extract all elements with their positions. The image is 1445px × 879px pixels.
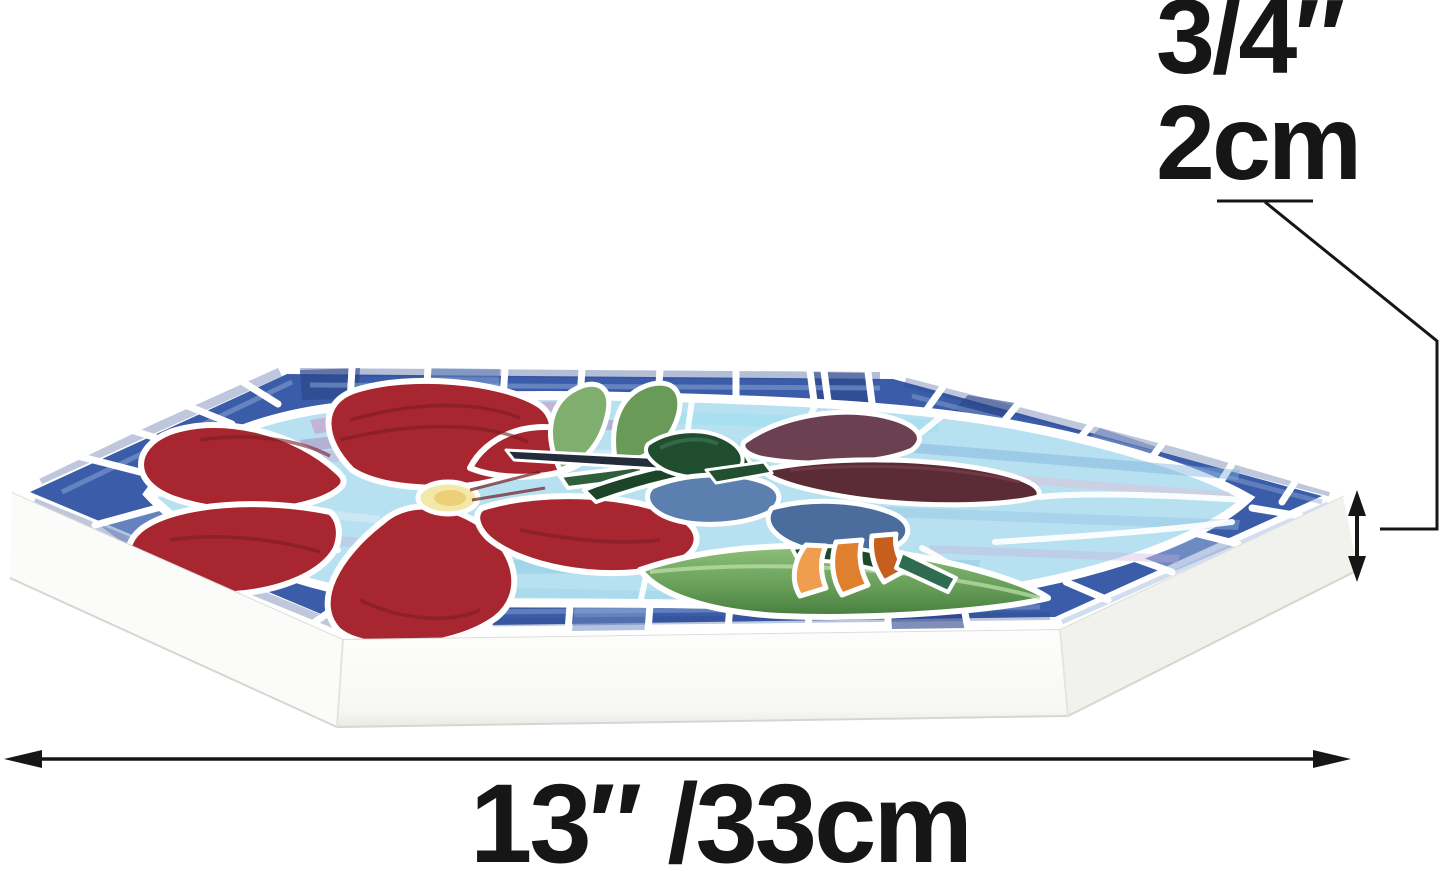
tail-feather-orange-2 (833, 540, 868, 595)
arrowhead-right (1313, 750, 1351, 768)
arrowhead-up (1348, 490, 1366, 516)
arrowhead-left (4, 750, 42, 768)
tail-feather-orange-1 (794, 545, 826, 596)
thickness-label-cm: 2cm (1156, 90, 1359, 196)
product-dimension-image: 3/4″ 2cm 13″ /33cm (0, 0, 1445, 879)
bird-wing-slate-upper (648, 475, 779, 524)
flower-center-core (434, 490, 466, 506)
width-label: 13″ /33cm (370, 768, 1070, 879)
thickness-label-inches: 3/4″ (1156, 0, 1342, 90)
base-front-face (337, 629, 1068, 727)
